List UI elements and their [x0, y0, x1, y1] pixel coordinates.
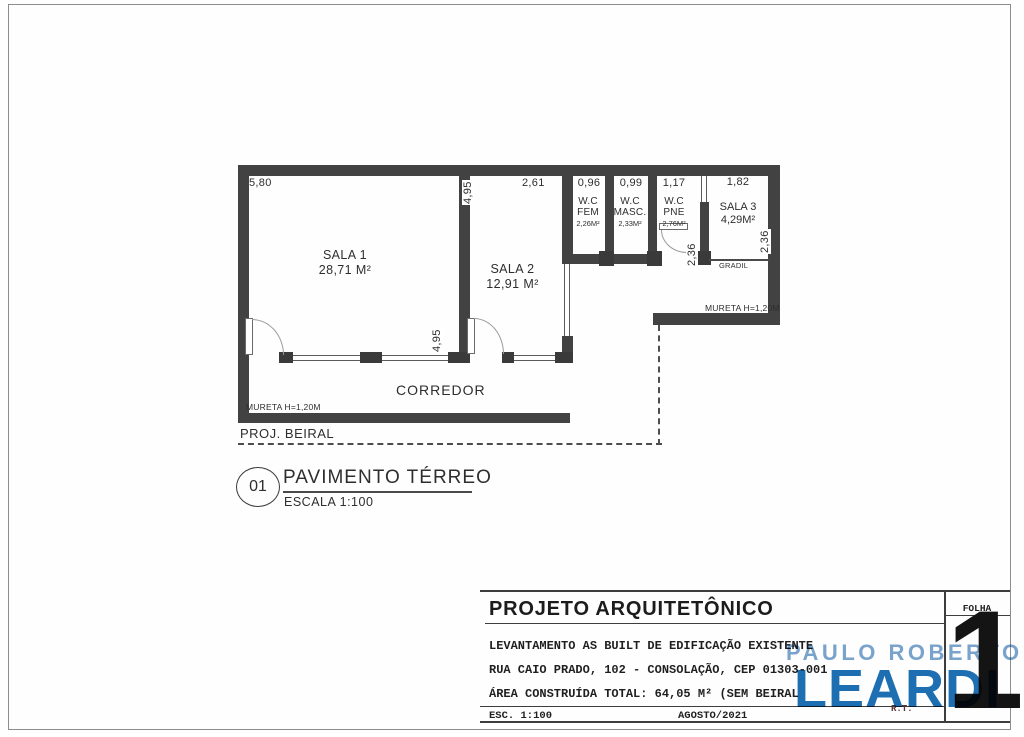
titleblock-top-line [480, 590, 1010, 592]
sala1-area: 28,71 M² [290, 263, 400, 278]
wcmasc-area: 2,33M² [606, 218, 654, 229]
gradil-label: GRADIL [719, 261, 748, 270]
bottom-wall-frame-5 [555, 352, 573, 363]
floor-plan: 5,80 4,95 2,61 0,96 0,99 1,17 1,82 4,95 … [0, 0, 1024, 520]
door-arc-sala1 [252, 319, 284, 355]
sala1-name: SALA 1 [290, 248, 400, 263]
room-label-wcfem: W.C FEM 2,26M² [566, 196, 610, 229]
watermark-leardi: LEARDI [794, 662, 1001, 716]
mureta-right-label: MURETA H=1,20M [705, 303, 780, 313]
titleblock-line1: LEVANTAMENTO AS BUILT DE EDIFICAÇÃO EXIS… [489, 639, 813, 653]
wcfem-line1: W.C [566, 196, 610, 207]
door-arc-sala2 [474, 318, 504, 354]
door-arc-wcpne [661, 230, 687, 253]
titleblock-title: PROJETO ARQUITETÔNICO [489, 598, 774, 621]
mureta-left-label: MURETA H=1,20M [246, 402, 321, 412]
wcpne-line2: PNE [652, 207, 696, 218]
titleblock-bottom-line [480, 721, 1010, 723]
room-label-sala3: SALA 3 4,29M² [710, 201, 766, 227]
dim-wcpne-width: 1,17 [653, 177, 695, 189]
bottom-wall-frame-2 [360, 352, 382, 363]
wall-stub-3 [697, 251, 711, 265]
sala3-name: SALA 3 [710, 201, 766, 214]
dim-sala3-width: 1,82 [710, 176, 766, 188]
drawing-sheet: 5,80 4,95 2,61 0,96 0,99 1,17 1,82 4,95 … [0, 0, 1024, 737]
dim-pne-depth: 2,36 [686, 242, 698, 267]
wall-top [238, 165, 780, 176]
window-sala2-a [514, 355, 555, 361]
dim-sala3-depth: 2,36 [759, 229, 771, 254]
dim-sala2-width: 2,61 [522, 177, 545, 189]
window-sala1-a [293, 355, 360, 361]
wcpne-area: 2,76M² [652, 218, 696, 229]
plan-title-text: PAVIMENTO TÉRREO [283, 467, 492, 489]
sala3-area: 4,29M² [710, 214, 766, 227]
room-label-wcpne: W.C PNE 2,76M² [652, 196, 696, 229]
wcmasc-line2: MASC. [606, 207, 654, 218]
wall-corridor-bottom [238, 413, 570, 423]
dim-wcfem-width: 0,96 [572, 177, 606, 189]
window-sala1-b [382, 355, 448, 361]
wcfem-area: 2,26M² [566, 218, 610, 229]
beiral-dashed-vertical [658, 325, 660, 445]
wall-left [238, 165, 249, 423]
dim-wcmasc-width: 0,99 [612, 177, 650, 189]
wcpne-line1: W.C [652, 196, 696, 207]
titleblock-line2: RUA CAIO PRADO, 102 - CONSOLAÇÃO, CEP 01… [489, 663, 827, 677]
plan-title-underline [283, 491, 472, 493]
beiral-dashed-horizontal [238, 443, 662, 445]
room-label-wcmasc: W.C MASC. 2,33M² [606, 196, 654, 229]
titleblock-title-underline [485, 623, 944, 624]
plan-title-number: 01 [249, 478, 267, 495]
wall-stub-1 [599, 251, 614, 266]
wall-stub-2 [647, 251, 662, 266]
room-label-sala1: SALA 1 28,71 M² [290, 248, 400, 278]
wcmasc-line1: W.C [606, 196, 654, 207]
room-label-sala2: SALA 2 12,91 M² [460, 262, 565, 292]
titleblock-line3: ÁREA CONSTRUÍDA TOTAL: 64,05 M² (SEM BEI… [489, 687, 799, 701]
dim-sala1-width: 5,80 [249, 177, 272, 189]
plan-title-number-circle: 01 [236, 467, 280, 507]
sala2-area: 12,91 M² [460, 277, 565, 292]
plan-title-scale: ESCALA 1:100 [284, 495, 373, 509]
wall-mureta-right [653, 313, 780, 325]
sala2-name: SALA 2 [460, 262, 565, 277]
window-wcpne-sala3 [701, 176, 707, 202]
wcfem-line2: FEM [566, 207, 610, 218]
proj-beiral-label: PROJ. BEIRAL [240, 426, 334, 441]
dim-height-top: 4,95 [462, 180, 474, 205]
corridor-label: CORREDOR [396, 382, 486, 398]
dim-height-bottom: 4,95 [431, 328, 443, 353]
